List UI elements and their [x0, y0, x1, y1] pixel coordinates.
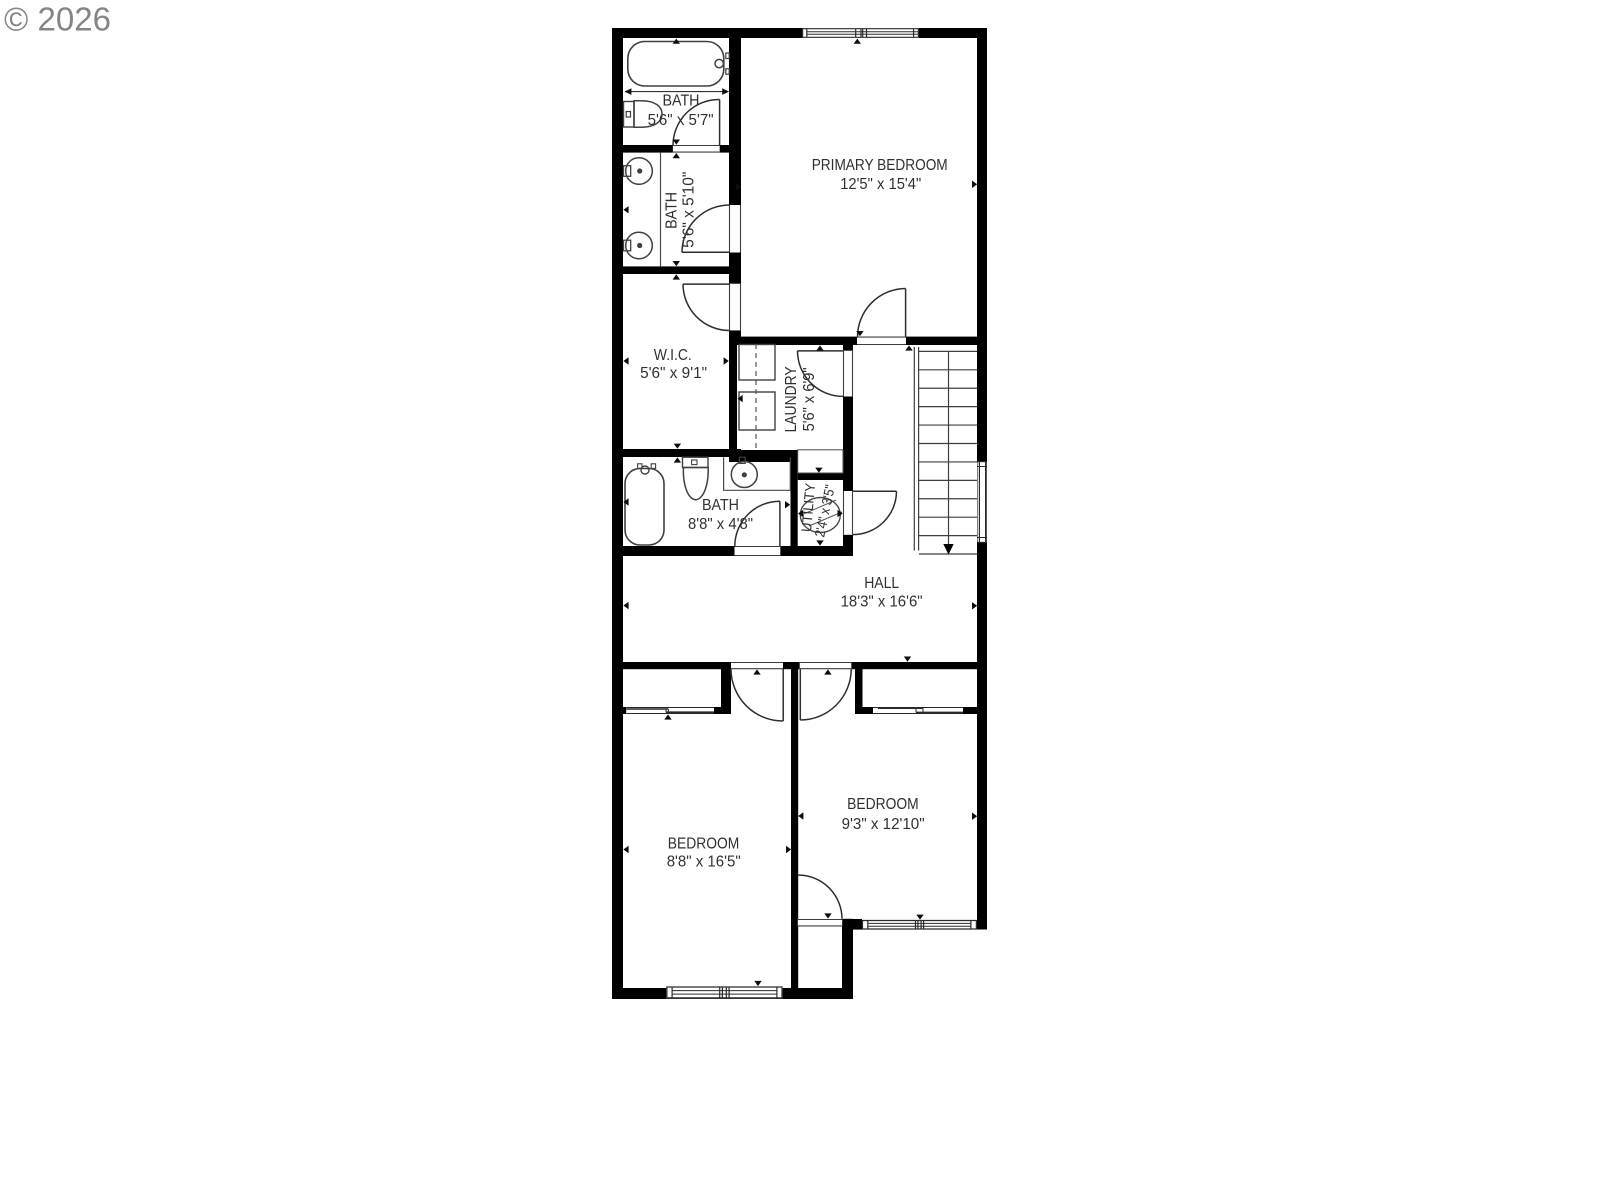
- svg-text:BATH: BATH: [702, 497, 739, 514]
- svg-text:8'8" x 16'5": 8'8" x 16'5": [667, 854, 741, 871]
- svg-text:BATH: BATH: [663, 93, 700, 110]
- svg-text:© 2026: © 2026: [4, 1, 111, 38]
- svg-text:5'6" x 5'10": 5'6" x 5'10": [681, 172, 698, 248]
- svg-text:HALL: HALL: [864, 575, 899, 592]
- svg-text:W.I.C.: W.I.C.: [654, 347, 692, 364]
- svg-text:12'5" x 15'4": 12'5" x 15'4": [840, 176, 921, 193]
- svg-text:9'3" x 12'10": 9'3" x 12'10": [842, 816, 925, 833]
- svg-text:8'8" x 4'8": 8'8" x 4'8": [688, 516, 753, 533]
- svg-text:BATH: BATH: [664, 192, 681, 229]
- svg-text:BEDROOM: BEDROOM: [668, 835, 740, 852]
- svg-text:LAUNDRY: LAUNDRY: [783, 366, 800, 432]
- svg-text:5'6" x 9'1": 5'6" x 9'1": [640, 365, 707, 382]
- svg-text:PRIMARY BEDROOM: PRIMARY BEDROOM: [812, 157, 948, 174]
- svg-text:5'6" x 6'9": 5'6" x 6'9": [801, 367, 818, 431]
- svg-text:5'6" x 5'7": 5'6" x 5'7": [648, 112, 714, 129]
- svg-text:18'3" x 16'6": 18'3" x 16'6": [841, 593, 923, 610]
- svg-text:BEDROOM: BEDROOM: [847, 796, 919, 813]
